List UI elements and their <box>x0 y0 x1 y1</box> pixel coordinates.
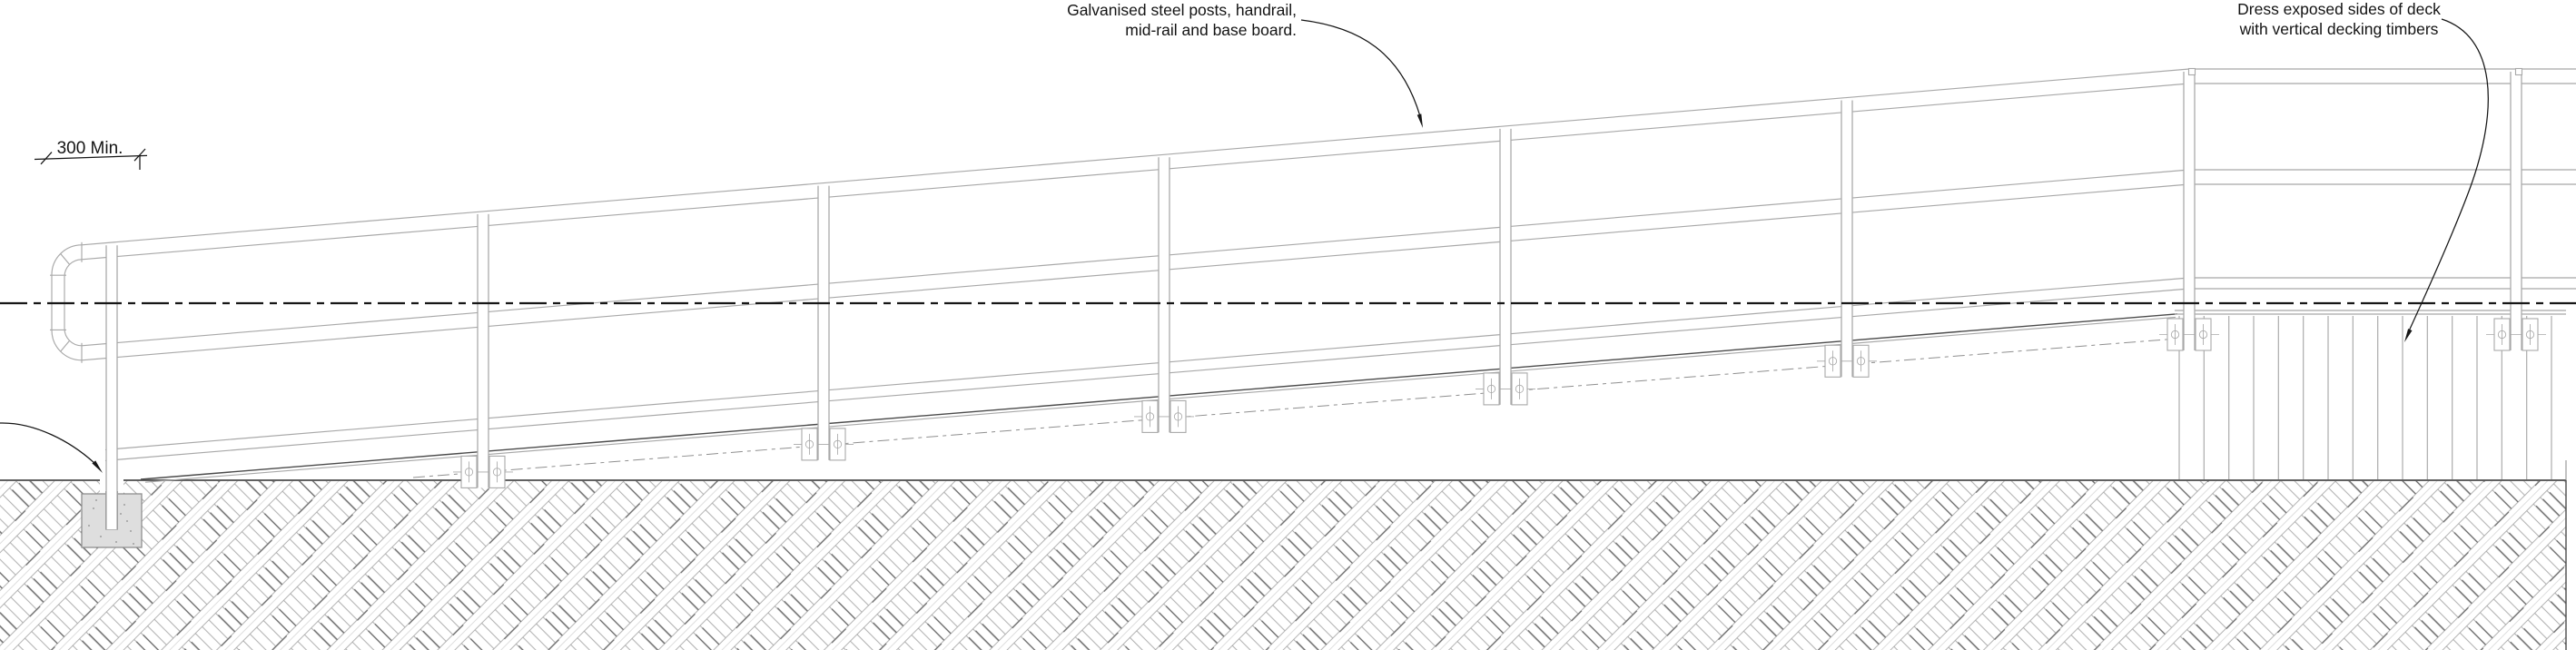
posts-note-line2: mid-rail and base board. <box>1125 21 1297 39</box>
dimension-300-min: 300 Min. <box>35 139 147 170</box>
leader-arrow <box>92 460 103 473</box>
handrail-post <box>1159 157 1170 432</box>
handrail-post <box>2511 72 2522 350</box>
ramp-elevation-drawing: 300 Min. Galvanised steel posts, handrai… <box>0 0 2576 650</box>
leader-line <box>0 423 95 464</box>
dimension-tick <box>41 153 52 164</box>
top-rail <box>82 69 2576 260</box>
handrail-post <box>478 214 489 488</box>
leader-arrow <box>1417 113 1423 128</box>
handrail-post <box>2184 72 2195 350</box>
leader-arrow <box>2404 329 2413 342</box>
leader-line <box>2407 19 2488 335</box>
base-board <box>105 278 2576 460</box>
rail-joint-connector <box>2189 69 2196 75</box>
handrail-post <box>1500 129 1511 405</box>
dimension-label: 300 Min. <box>57 139 123 158</box>
posts-note-line1: Galvanised steel posts, handrail, <box>1067 1 1297 19</box>
ground-hatch <box>0 481 2566 650</box>
handrail-post <box>818 186 829 460</box>
annotation-deck-note: Dress exposed sides of deck with vertica… <box>2237 0 2488 342</box>
leader-line <box>1301 20 1420 116</box>
bolt-centerline <box>413 337 2202 478</box>
deck-note-line2: with vertical decking timbers <box>2239 20 2439 38</box>
annotation-posts-note: Galvanised steel posts, handrail, mid-ra… <box>1067 1 1423 128</box>
elevation-canvas: 300 Min. Galvanised steel posts, handrai… <box>0 0 2576 650</box>
handrail-post <box>106 245 117 529</box>
rail-joint-connector <box>2516 69 2522 75</box>
deck-note-line1: Dress exposed sides of deck <box>2237 0 2441 18</box>
annotation-footing-leader <box>0 423 103 473</box>
handrail-post <box>1841 101 1852 378</box>
